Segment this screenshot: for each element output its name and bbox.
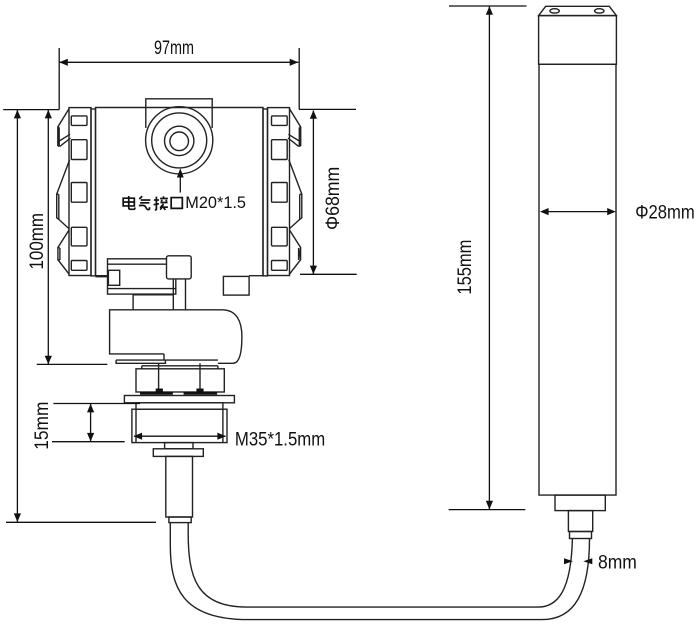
svg-text:M35*1.5mm: M35*1.5mm <box>235 428 325 450</box>
svg-text:8mm: 8mm <box>598 552 637 574</box>
svg-text:97mm: 97mm <box>154 37 194 59</box>
svg-text:Φ28mm: Φ28mm <box>635 202 695 224</box>
svg-text:100mm: 100mm <box>26 213 48 270</box>
svg-text:15mm: 15mm <box>31 402 53 450</box>
svg-text:Φ68mm: Φ68mm <box>322 167 344 230</box>
svg-text:155mm: 155mm <box>454 240 476 295</box>
svg-text:M20*1.5: M20*1.5 <box>185 194 246 212</box>
